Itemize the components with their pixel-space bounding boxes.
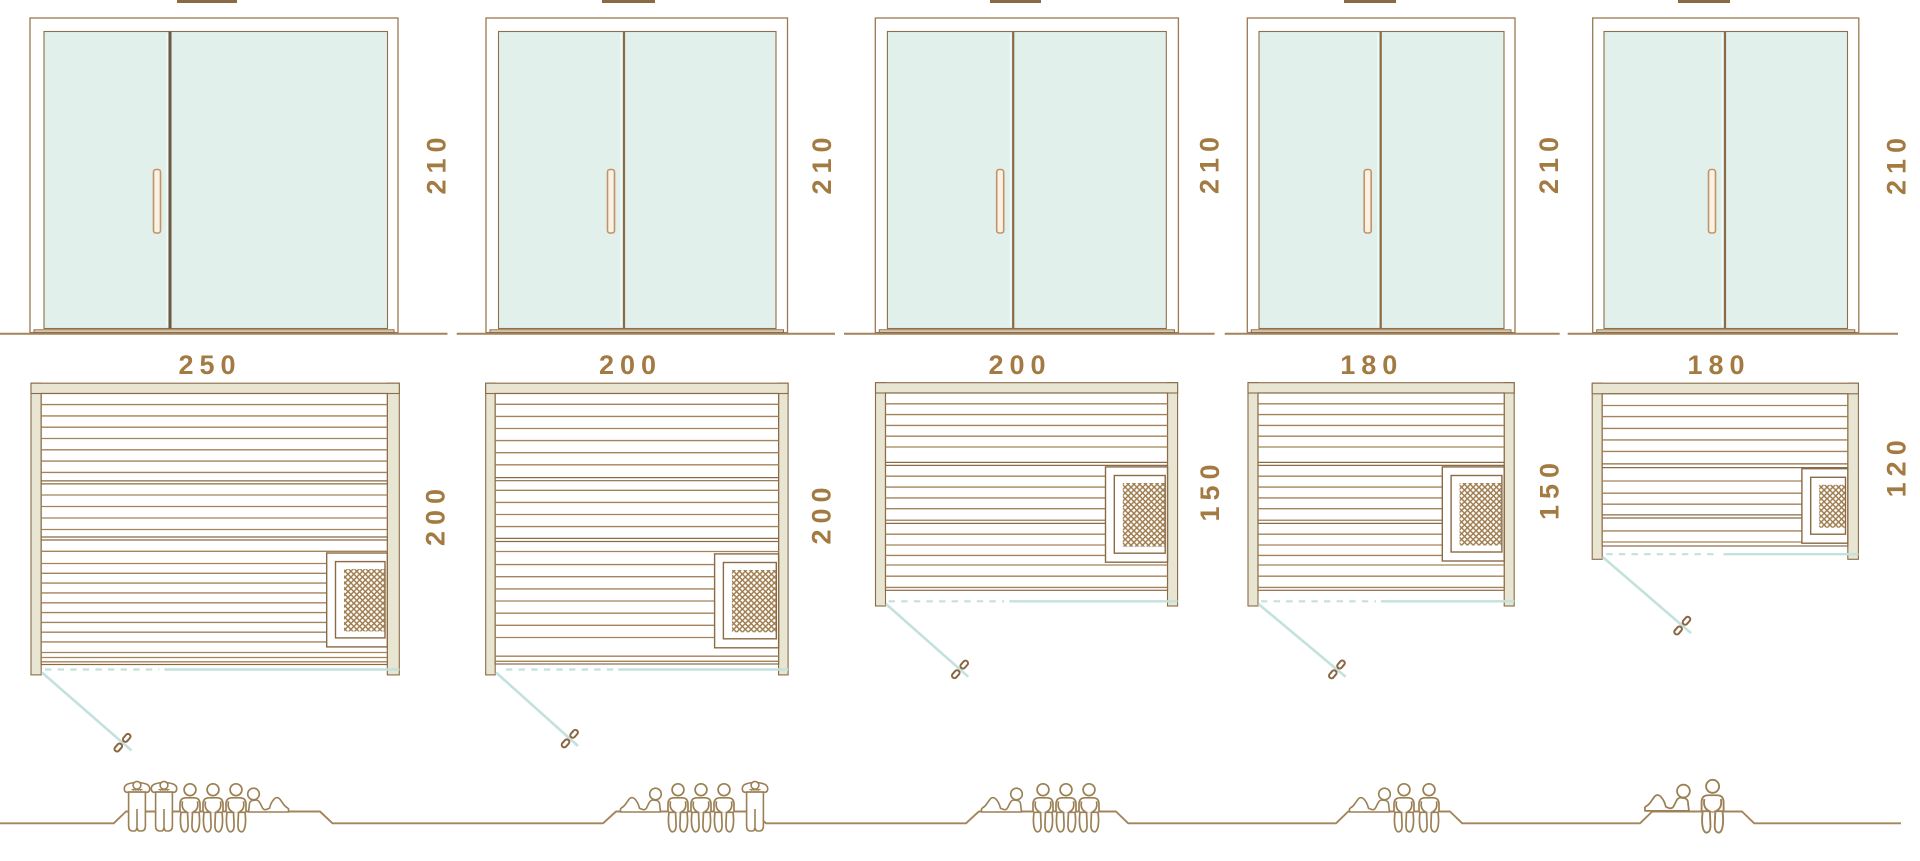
svg-text:120: 120 [1882, 434, 1912, 497]
svg-text:200: 200 [988, 350, 1051, 380]
svg-text:210: 210 [1534, 131, 1564, 194]
svg-text:150: 150 [1195, 458, 1225, 521]
svg-text:210: 210 [422, 131, 452, 194]
svg-text:250: 250 [178, 350, 241, 380]
svg-text:210: 210 [807, 131, 837, 194]
svg-text:210: 210 [1195, 131, 1225, 194]
svg-text:210: 210 [1882, 132, 1912, 195]
svg-text:200: 200 [807, 481, 837, 544]
svg-text:180: 180 [1340, 350, 1403, 380]
svg-text:200: 200 [599, 350, 662, 380]
svg-text:180: 180 [1687, 350, 1750, 380]
svg-text:150: 150 [1535, 457, 1565, 520]
svg-text:200: 200 [421, 483, 451, 546]
